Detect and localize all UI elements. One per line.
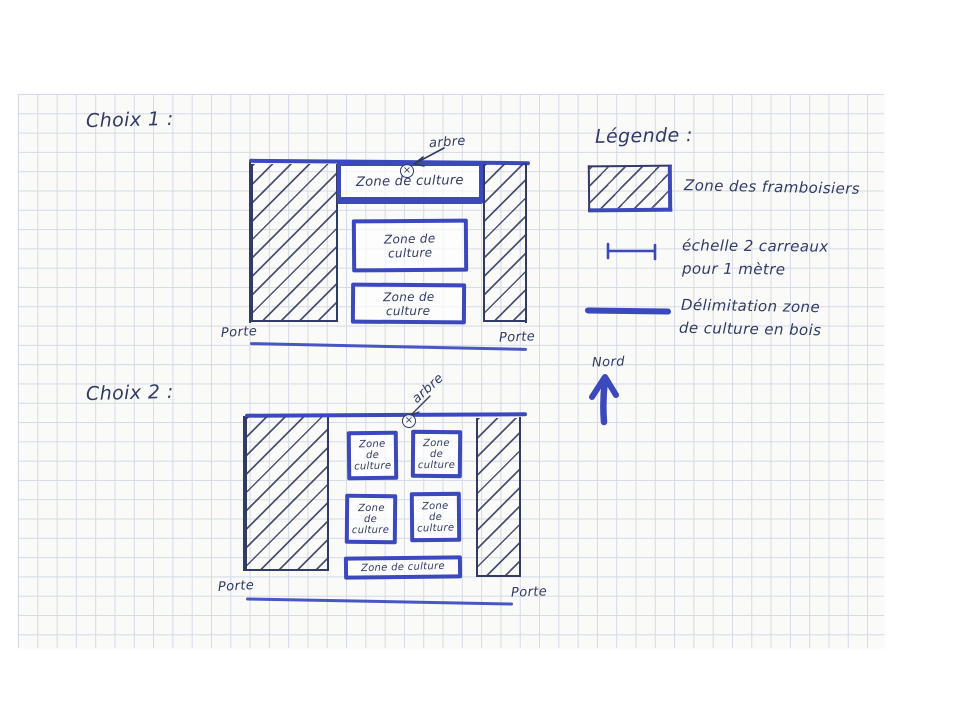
wood-delimitation-swatch xyxy=(585,307,671,314)
culture-zone-label: culture xyxy=(417,522,455,534)
culture-zone-label: culture xyxy=(388,245,433,260)
culture-zone-box: Zone de culture xyxy=(411,430,462,478)
legend-framboisiers-label: Zone des framboisiers xyxy=(684,177,860,197)
north-label: Nord xyxy=(592,355,625,370)
culture-zone-box: Zone de culture xyxy=(352,219,468,273)
north-arrow-icon xyxy=(583,370,627,426)
legend-title: Légende : xyxy=(595,125,693,148)
choix2-title: Choix 2 : xyxy=(86,382,174,405)
culture-zone-label: culture xyxy=(354,460,392,472)
choix2-door-label-left: Porte xyxy=(218,579,255,595)
culture-zone-label: Zone xyxy=(358,502,385,513)
culture-zone-label: de xyxy=(366,450,379,461)
culture-zone-label: Zone xyxy=(422,500,449,512)
arrow-to-tree-icon xyxy=(407,144,447,170)
culture-zone-box: Zone de culture xyxy=(345,494,397,544)
legend-scale-label-line2: pour 1 mètre xyxy=(682,261,786,278)
culture-zone-label: culture xyxy=(386,303,430,317)
framboisiers-swatch xyxy=(588,165,672,213)
culture-zone-box: Zone de culture xyxy=(344,555,462,579)
culture-zone-label: de xyxy=(429,511,442,522)
legend-delimitation-label-line2: de culture en bois xyxy=(679,320,822,339)
culture-zone-label: Zone de xyxy=(384,231,436,246)
choix1-title: Choix 1 : xyxy=(86,109,174,132)
choix1-door-label-left: Porte xyxy=(221,325,258,341)
culture-zone-label: de xyxy=(364,513,377,524)
choix1-framboisiers-zone-right xyxy=(483,164,527,322)
culture-zone-box: Zone de culture xyxy=(351,283,466,325)
choix2-framboisiers-zone-left xyxy=(245,417,329,571)
culture-zone-label: culture xyxy=(352,524,389,535)
choix1-framboisiers-zone-left xyxy=(251,164,338,322)
culture-zone-label: Zone xyxy=(423,437,450,448)
line-to-tree-icon xyxy=(406,394,432,418)
culture-zone-label: de xyxy=(430,448,443,459)
culture-zone-box: Zone de culture xyxy=(347,431,399,481)
scale-bar-icon xyxy=(605,242,659,260)
culture-zone-label: Zone de xyxy=(383,289,435,304)
choix2-framboisiers-zone-right xyxy=(476,418,521,577)
choix1-door-label-right: Porte xyxy=(499,330,536,346)
legend-delimitation-label-line1: Délimitation zone xyxy=(681,297,820,316)
scanned-notebook-page: Choix 1 : Zone de culture Zone de cultur… xyxy=(0,0,960,720)
culture-zone-box: Zone de culture xyxy=(410,492,461,542)
culture-zone-label: Zone xyxy=(359,439,386,451)
choix2-door-label-right: Porte xyxy=(511,585,548,601)
legend-scale-label-line1: échelle 2 carreaux xyxy=(682,237,829,255)
culture-zone-label: culture xyxy=(418,459,455,470)
culture-zone-label: Zone de culture xyxy=(361,561,445,574)
